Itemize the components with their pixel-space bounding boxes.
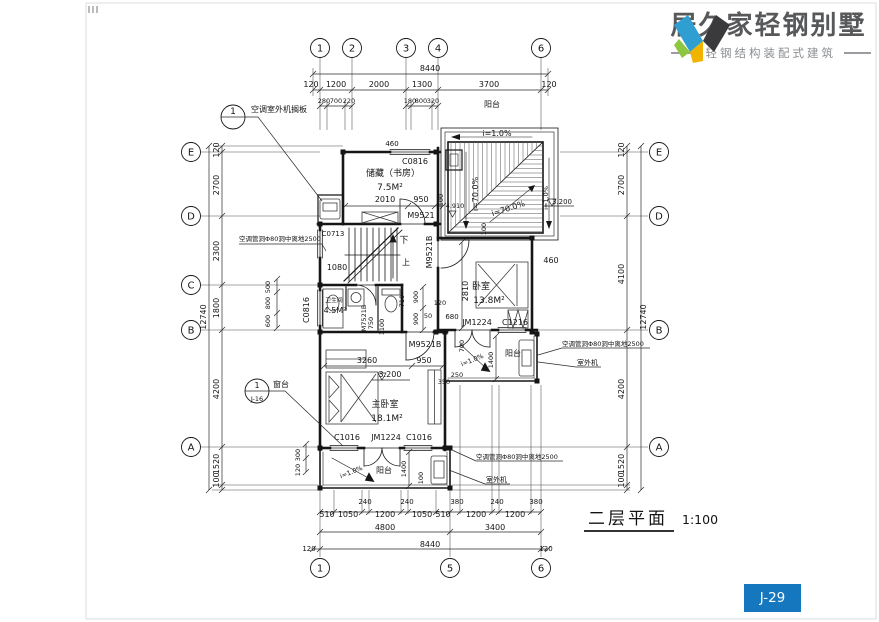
slope-roof-top: i=1.0%	[482, 129, 512, 138]
tagline-rule-right	[844, 52, 871, 54]
axis-label: 6	[538, 564, 544, 575]
floor-plan-svg: 1 2 3 4 6 1 5 6 E D C B A E D B A	[0, 0, 879, 622]
callout1-number: 1	[230, 107, 236, 117]
slope-bottom-balcony: i=1.0%	[339, 464, 364, 480]
window-c1016-a: C1016	[334, 433, 360, 442]
dim-900-a: 900	[412, 291, 420, 303]
drawing-title-block: 二层平面 1:100	[584, 509, 718, 531]
dim-bot-4: 240	[400, 498, 413, 506]
room-master-name: 主卧室	[371, 398, 398, 410]
dim-bot-3400: 3400	[485, 523, 505, 532]
stair-down: 下	[399, 236, 408, 246]
dim-left-6: 100	[212, 472, 221, 487]
dim-bot-2: 240	[358, 498, 371, 506]
door-jm1224-master: JM1224	[370, 433, 401, 442]
ac-unit-bottom	[431, 456, 447, 484]
dim-bot-edge-l: 120	[302, 545, 315, 553]
dim-top-1: 1200	[326, 80, 346, 89]
window-c1016-b: C1016	[406, 433, 432, 442]
dim-1400-right: 1400	[487, 352, 495, 369]
dim-top-sub-320: 320	[427, 97, 439, 105]
door-m9521b-v: M9521B	[425, 236, 434, 269]
note-sill: 窗台	[273, 379, 289, 389]
dim-left-2: 2300	[212, 241, 221, 261]
dim-bot-11: 380	[529, 498, 542, 506]
dim-bot-10: 1200	[505, 510, 525, 519]
dim-bot-6: 510	[435, 510, 450, 519]
dim-top-sub-700: 700	[330, 97, 342, 105]
window-c0713: C0713	[322, 230, 345, 238]
dim-250: 250	[451, 371, 463, 379]
axis-bubble-right-D: D	[650, 207, 669, 226]
dim-460-top: 460	[385, 140, 398, 148]
note-ac-hole-bottom: 空调管洞Φ80洞中离地2500	[476, 452, 558, 461]
dim-right-3: 4200	[617, 379, 626, 399]
dim-right-2: 4100	[617, 264, 626, 284]
axis-bubbles: 1 2 3 4 6 1 5 6 E D C B A E D B A	[182, 39, 669, 578]
note-ac-shelf: 空调室外机搁板	[251, 104, 307, 114]
dim-left-5: 1520	[212, 454, 221, 474]
dim-350: 350	[438, 378, 450, 386]
axis-label: 5	[447, 564, 453, 575]
axis-bubble-bottom-1: 1	[311, 559, 330, 578]
sheet-number-badge: J-29	[744, 584, 801, 612]
note-ac-hole-right: 空调管洞Φ80洞中离地2500	[562, 339, 644, 348]
room-storage-area: 7.5M²	[377, 183, 403, 193]
room-bath-name: 卫生间	[325, 296, 343, 304]
door-m9521: M9521	[407, 211, 434, 220]
level-master: 3.200	[379, 370, 402, 379]
dim-680: 680	[445, 313, 458, 321]
balcony-bottom-label: 阳台	[376, 465, 392, 475]
stairs	[344, 228, 402, 283]
dim-right-1: 2700	[617, 175, 626, 195]
dim-710: 710	[398, 295, 406, 307]
dim-right-4: 1520	[617, 454, 626, 474]
dim-2010: 2010	[375, 195, 395, 204]
axis-bubble-top-4: 4	[429, 39, 448, 58]
door-jm1224-bedroom: JM1224	[461, 318, 492, 327]
axis-bubble-left-B: B	[182, 321, 201, 340]
dim-bot-4800: 4800	[375, 523, 395, 532]
room-master-area: 18.1M²	[371, 414, 403, 424]
dim-top-2: 2000	[369, 80, 389, 89]
toilet	[385, 296, 397, 312]
stair-up: 上	[402, 258, 410, 267]
brand-logo: 居久家轻钢别墅 轻钢结构装配式建筑	[671, 12, 872, 61]
dim-120-hall: 120	[434, 299, 446, 307]
slope-right-balcony: i=1.0%	[460, 352, 485, 368]
dim-bot-9: 240	[490, 498, 503, 506]
note-outdoor-right: 室外机	[577, 358, 598, 367]
axis-label: 6	[538, 44, 544, 55]
dim-top-sub-280: 280	[318, 97, 330, 105]
note-outdoor-bottom: 室外机	[486, 475, 507, 484]
dim-100-storage: 100	[437, 194, 445, 206]
axis-bubble-right-E: E	[650, 143, 669, 162]
axis-label: E	[656, 148, 662, 159]
callout2-ref: J-16	[250, 395, 263, 403]
dim-bot-1: 1050	[338, 510, 358, 519]
slope-roof-70-v: i=70.0%	[471, 176, 480, 211]
axis-label: B	[188, 326, 195, 337]
dim-3260: 3260	[357, 356, 377, 365]
axis-bubble-top-1: 1	[311, 39, 330, 58]
dim-1080: 1080	[327, 263, 347, 272]
dim-bot-5: 1050	[412, 510, 432, 519]
axis-bubble-top-6: 6	[532, 39, 551, 58]
axis-label: D	[187, 212, 195, 223]
axis-label: B	[656, 326, 663, 337]
dim-bot-total: 8440	[420, 540, 440, 549]
dim-bot-8: 1200	[466, 510, 486, 519]
axis-label: 1	[317, 44, 323, 55]
dim-left-total: 12740	[199, 304, 208, 329]
dim-900-b: 900	[412, 313, 420, 325]
dim-corner-300: 300	[294, 449, 302, 461]
axis-label: 4	[435, 44, 441, 55]
brand-logo-icon	[671, 12, 731, 66]
axis-bubble-bottom-6: 6	[532, 559, 551, 578]
dim-bot-0: 510	[319, 510, 334, 519]
dim-right-total: 12740	[639, 304, 648, 329]
dim-top-5: 120	[541, 80, 556, 89]
axis-label: A	[656, 443, 663, 454]
dim-2810: 2810	[461, 281, 470, 301]
dim-left-4: 4200	[212, 379, 221, 399]
slope-roof-70-d: i=70.0%	[491, 199, 527, 218]
dim-corner-120: 120	[294, 464, 302, 476]
dim-top-sub-220: 220	[343, 97, 355, 105]
dim-1100: 1100	[378, 319, 386, 336]
note-ac-hole-left: 空调管洞Φ80洞中离地2500	[239, 234, 321, 243]
dim-top-sub-800: 800	[415, 97, 427, 105]
callout2-number: 1	[254, 381, 259, 390]
dim-bot-7: 380	[450, 498, 463, 506]
dim-top-3: 1300	[412, 80, 432, 89]
washer	[348, 289, 364, 306]
axis-bubble-top-2: 2	[343, 39, 362, 58]
room-bedroom-area: 13.8M²	[473, 296, 505, 306]
window-c0816-left: C0816	[302, 297, 311, 323]
dim-950-storage: 950	[413, 195, 428, 204]
callouts	[221, 105, 650, 484]
axis-label: 2	[349, 44, 355, 55]
axis-label: A	[188, 443, 195, 454]
toilet-tank	[382, 289, 400, 295]
axis-label: 3	[403, 44, 409, 55]
slope-roof-right: i=1.0%	[542, 186, 550, 210]
axis-bubble-left-A: A	[182, 438, 201, 457]
dim-left-0: 120	[212, 142, 221, 157]
level-4910: 4.910	[446, 202, 465, 210]
dim-50: 50	[424, 312, 432, 320]
room-bedroom-name: 卧室	[472, 280, 490, 292]
roof-terrace	[441, 128, 558, 240]
dim-left-3: 1800	[212, 298, 221, 318]
axis-bubble-left-C: C	[182, 276, 201, 295]
axis-label: 1	[317, 564, 323, 575]
dim-top-total: 8440	[420, 64, 440, 73]
level-roof: 3.200	[552, 198, 572, 206]
dim-left-inner-600: 600	[264, 315, 272, 327]
axis-bubble-bottom-5: 5	[441, 559, 460, 578]
axis-bubble-left-D: D	[182, 207, 201, 226]
axis-label: E	[188, 148, 194, 159]
dim-left-inner-800: 800	[264, 297, 272, 309]
axis-bubble-right-B: B	[650, 321, 669, 340]
dim-460-right: 460	[543, 256, 558, 265]
dim-right-5: 100	[617, 472, 626, 487]
window-c0816-top: C0816	[402, 157, 428, 166]
drawing-sheet: 1 2 3 4 6 1 5 6 E D C B A E D B A	[0, 0, 879, 622]
dim-1400-bottom: 1400	[400, 461, 408, 478]
balcony-right-label: 阳台	[505, 348, 521, 358]
dim-100-balcony: 100	[417, 472, 425, 484]
door-m9521b-master: M9521B	[409, 340, 442, 349]
axis-label: D	[655, 212, 663, 223]
dim-750: 750	[367, 317, 375, 329]
dim-left-1: 2700	[212, 175, 221, 195]
ac-unit-right	[519, 340, 534, 376]
dim-top-4: 3700	[479, 80, 499, 89]
dim-100-roof: 100	[480, 223, 488, 235]
room-bath-area: 4.5M²	[324, 306, 347, 315]
dim-bot-3: 1200	[375, 510, 395, 519]
axis-label: C	[188, 281, 195, 292]
dim-950-master: 950	[416, 356, 431, 365]
dim-bot-edge-r: 120	[539, 545, 552, 553]
axis-bubble-top-3: 3	[397, 39, 416, 58]
drawing-title: 二层平面	[588, 509, 668, 529]
window-c1216: C1216	[502, 318, 528, 327]
dim-700: 700	[458, 340, 466, 352]
room-storage-name: 储藏（书房）	[366, 167, 420, 179]
label-top-balcony: 阳台	[484, 99, 500, 109]
axis-bubble-right-A: A	[650, 438, 669, 457]
dim-right-0: 120	[617, 142, 626, 157]
dim-top-0: 120	[303, 80, 318, 89]
drawing-scale: 1:100	[682, 512, 718, 527]
axis-bubble-left-E: E	[182, 143, 201, 162]
dim-left-inner-500: 500	[264, 281, 272, 293]
